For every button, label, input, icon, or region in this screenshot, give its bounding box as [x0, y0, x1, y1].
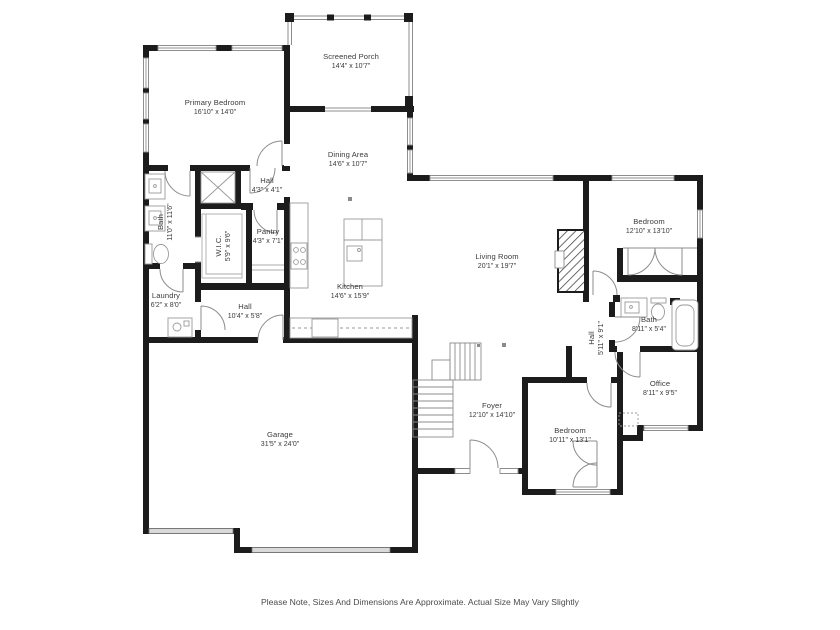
wall-layer — [143, 45, 703, 553]
room-label-living-room: Living Room 20'1" x 19'7" — [475, 252, 518, 272]
closet-doors — [573, 248, 697, 487]
laundry-fixtures — [168, 318, 192, 337]
floorplan-svg — [0, 0, 840, 630]
room-label-hall-primary: Hall 4'3" x 4'1" — [252, 176, 283, 196]
room-label-kitchen: Kitchen 14'6" x 15'9" — [331, 282, 369, 302]
room-label-foyer: Foyer 12'10" x 14'10" — [469, 401, 515, 421]
room-label-wic: W.I.C. 5'9" x 9'6" — [214, 231, 234, 262]
room-label-bath-right: Bath 8'11" x 5'4" — [632, 315, 666, 335]
room-label-screened-porch: Screened Porch 14'4" x 10'7" — [323, 52, 379, 72]
room-label-office: Office 8'11" x 9'5" — [643, 379, 677, 399]
room-label-bath-primary: Bath 11'0" x 11'6" — [156, 203, 176, 240]
disclaimer-note: Please Note, Sizes And Dimensions Are Ap… — [0, 597, 840, 607]
floorplan-canvas: Screened Porch 14'4" x 10'7" Primary Bed… — [0, 0, 840, 630]
room-label-dining-area: Dining Area 14'6" x 10'7" — [328, 150, 368, 170]
room-label-hall-bottom: Hall 10'4" x 5'8" — [228, 302, 263, 322]
room-label-bedroom-2: Bedroom 10'11" x 13'1" — [549, 426, 591, 446]
stairs — [413, 343, 481, 437]
fireplace — [555, 230, 585, 292]
room-label-garage: Garage 31'5" x 24'0" — [261, 430, 299, 450]
room-label-primary-bedroom: Primary Bedroom 16'10" x 14'0" — [185, 98, 246, 118]
room-label-laundry: Laundry 6'2" x 8'0" — [151, 291, 182, 311]
room-label-hall-right: Hall 5'11" x 9'1" — [587, 321, 607, 355]
room-label-pantry: Pantry 4'3" x 7'1" — [253, 227, 284, 247]
room-label-bedroom-1: Bedroom 12'10" x 13'10" — [626, 217, 672, 237]
kitchen-fixtures — [290, 203, 412, 338]
garage-doors — [149, 529, 390, 553]
